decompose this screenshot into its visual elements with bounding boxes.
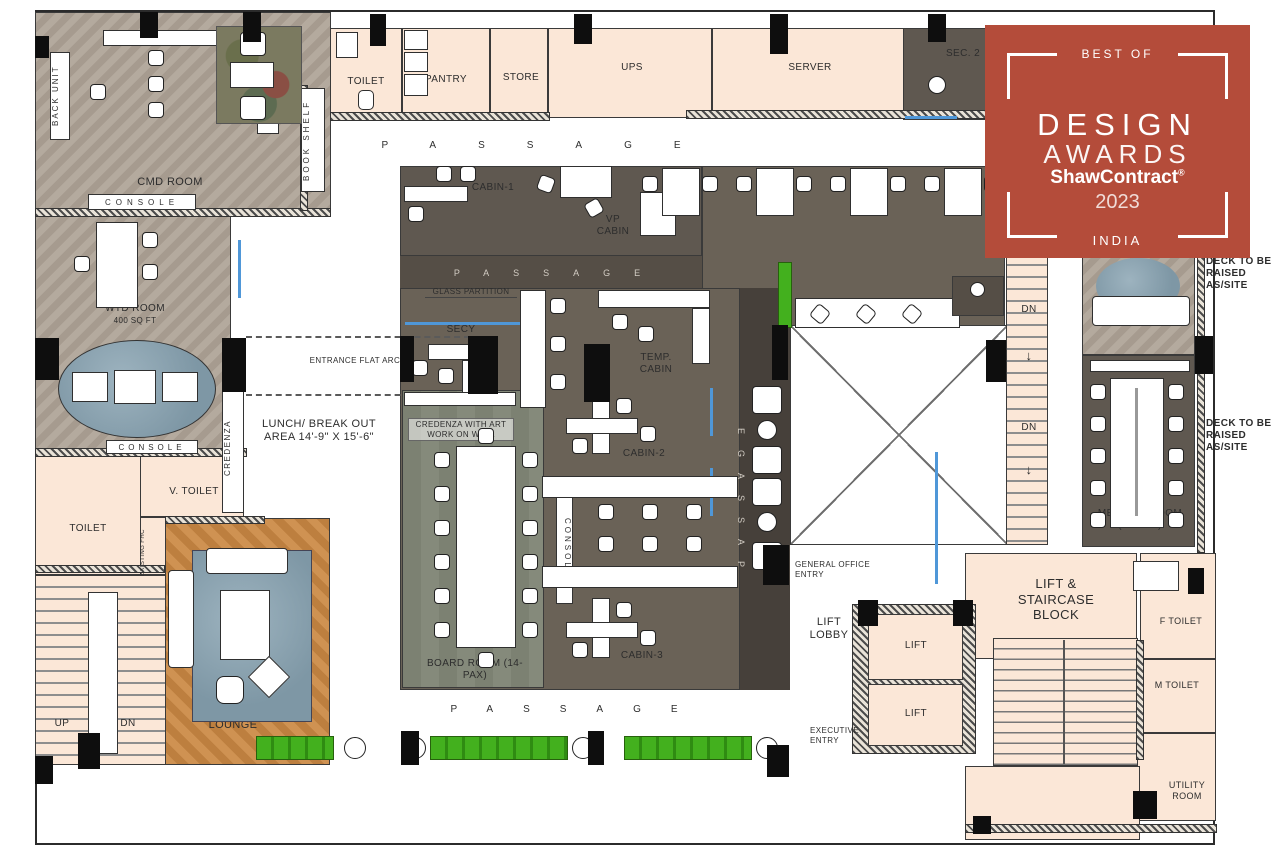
- ws-desk: [944, 168, 982, 216]
- chair: [434, 554, 450, 570]
- cabin2-desk: [566, 418, 638, 434]
- passage-vertical-label: EGASSAP: [726, 378, 746, 634]
- cmd-room-label: CMD ROOM: [120, 176, 220, 189]
- chair: [522, 486, 538, 502]
- board-credenza: [404, 392, 516, 406]
- ws-column-desk: [520, 290, 546, 408]
- glass-line: [710, 388, 713, 436]
- glass-line: [405, 322, 537, 325]
- passage-bottom-label: PASSAGE: [444, 704, 714, 716]
- temp-cabin-desk: [598, 290, 710, 308]
- column: [973, 816, 991, 834]
- down-arrow-2: ↓: [1016, 462, 1042, 478]
- chair: [478, 652, 494, 668]
- column: [401, 731, 419, 765]
- chair: [434, 452, 450, 468]
- chair: [522, 622, 538, 638]
- exec-armchair: [216, 676, 244, 704]
- cluster-desk-bottom: [542, 566, 738, 588]
- award-badge: BEST OF DESIGN AWARDS ShawContract® 2023…: [985, 25, 1250, 258]
- exec-entry-label: EXECUTIVE ENTRY: [810, 726, 878, 745]
- chair: [550, 374, 566, 390]
- bench-seat: [752, 478, 782, 506]
- cabin1-desk: [404, 186, 468, 202]
- deck-label-top: DECK TO BE RAISED AS/SITE: [1206, 256, 1278, 292]
- chair: [148, 50, 164, 66]
- column: [222, 338, 246, 392]
- glass-line: [935, 452, 938, 584]
- chair: [1168, 416, 1184, 432]
- sec2-label: SEC. 2: [936, 48, 990, 60]
- chair: [642, 536, 658, 552]
- m-toilet-room: [1140, 659, 1216, 733]
- shaft-x-box: [1133, 561, 1179, 591]
- chair: [616, 398, 632, 414]
- chair: [550, 298, 566, 314]
- column: [1188, 568, 1204, 594]
- chair: [1090, 448, 1106, 464]
- back-unit-label: BACK UNIT: [50, 52, 70, 140]
- chair: [572, 438, 588, 454]
- chair: [598, 504, 614, 520]
- column: [35, 338, 59, 380]
- glass-line: [905, 116, 957, 119]
- wall-segment: [686, 110, 1006, 119]
- chair: [434, 520, 450, 536]
- deck-label-mid: DECK TO BE RAISED AS/SITE: [1206, 418, 1278, 454]
- chair: [522, 520, 538, 536]
- column: [953, 600, 973, 626]
- bench-seat: [752, 446, 782, 474]
- pantry-appliance: [404, 30, 428, 50]
- column: [35, 36, 49, 58]
- chair: [478, 428, 494, 444]
- lift-staircase-label: LIFT & STAIRCASE BLOCK: [1000, 576, 1112, 623]
- glass-line: [238, 240, 241, 298]
- chair: [438, 368, 454, 384]
- up-label: UP: [46, 718, 78, 730]
- secy-label: SECY: [438, 324, 484, 336]
- chair: [1168, 480, 1184, 496]
- lounge-sofa: [1092, 296, 1190, 326]
- chair: [1090, 480, 1106, 496]
- cabin2-label: CABIN-2: [612, 448, 676, 460]
- entrance-arch-label: ENTRANCE FLAT ARCH: [303, 356, 413, 366]
- column: [858, 600, 878, 626]
- exec-table: [220, 590, 270, 660]
- pantry-appliance: [404, 52, 428, 72]
- stairs-bottom-right: [993, 638, 1138, 766]
- toilet-left-label: TOILET: [58, 523, 118, 535]
- wtd-desk: [96, 222, 138, 308]
- column: [78, 733, 100, 769]
- ws-desk: [662, 168, 700, 216]
- column: [243, 12, 261, 42]
- chair: [598, 536, 614, 552]
- lift1-label: LIFT: [898, 640, 934, 652]
- v-toilet-label: V. TOILET: [158, 486, 230, 498]
- column: [772, 325, 788, 380]
- column: [35, 756, 53, 784]
- chair: [522, 452, 538, 468]
- chair: [640, 630, 656, 646]
- chair: [686, 504, 702, 520]
- badge-brand-text: ShawContract: [1050, 167, 1178, 188]
- lift-lobby-label: LIFT LOBBY: [800, 616, 858, 642]
- chair: [142, 264, 158, 280]
- chair: [522, 554, 538, 570]
- wall-segment: [1136, 640, 1144, 760]
- badge-reg-mark: ®: [1178, 168, 1185, 178]
- cabin3-desk: [566, 622, 638, 638]
- wall-segment: [330, 112, 550, 121]
- badge-title-awards: AWARDS: [985, 139, 1250, 170]
- temp-cabin-label: TEMP. CABIN: [628, 352, 684, 376]
- down-arrow-1: ↓: [1016, 348, 1042, 364]
- chair: [240, 96, 266, 120]
- chair: [550, 336, 566, 352]
- chair: [90, 84, 106, 100]
- stair-divider: [1063, 640, 1065, 764]
- chair: [436, 166, 452, 182]
- toilet-sink: [336, 32, 358, 58]
- badge-title-design: DESIGN: [985, 107, 1250, 143]
- column: [584, 344, 610, 402]
- round-planter: [344, 737, 366, 759]
- chair: [74, 256, 90, 272]
- column: [468, 336, 498, 394]
- core-shaft: [790, 325, 1008, 545]
- meeting-table-slot: [1135, 388, 1138, 516]
- chair: [1090, 384, 1106, 400]
- temp-cabin-return: [692, 308, 710, 364]
- planter: [430, 736, 568, 760]
- planter: [624, 736, 752, 760]
- exec-sofa-top: [206, 548, 288, 574]
- chair: [642, 176, 658, 192]
- meeting-credenza: [1090, 360, 1190, 372]
- glass-partition-label: GLASS PARTITION: [425, 287, 517, 298]
- chair: [702, 176, 718, 192]
- chair: [434, 622, 450, 638]
- chair: [412, 360, 428, 376]
- chair: [1168, 384, 1184, 400]
- server-label: SERVER: [782, 62, 838, 74]
- floor-plan-canvas: BACK UNIT BOOK SHELF CREDENZA CONSOLE CO…: [0, 0, 1280, 856]
- badge-brand: ShawContract®: [985, 167, 1250, 189]
- column: [770, 14, 788, 54]
- dn-right-1: DN: [1014, 304, 1044, 316]
- column: [370, 14, 386, 46]
- bench-seat: [752, 386, 782, 414]
- stair-rail: [88, 592, 118, 754]
- planter: [256, 736, 334, 760]
- chair: [638, 326, 654, 342]
- cmd-coffee-table: [230, 62, 274, 88]
- console-wtd-label: CONSOLE: [106, 440, 198, 454]
- chair: [642, 504, 658, 520]
- stairs-right: [1006, 253, 1048, 545]
- wtd-area-label: 400 SQ FT: [105, 316, 165, 326]
- chair: [796, 176, 812, 192]
- column: [767, 745, 789, 777]
- vp-cabin-label: VP CABIN: [590, 214, 636, 238]
- board-room-label: BOARD ROOM (14-PAX): [425, 658, 525, 682]
- chair: [612, 314, 628, 330]
- badge-country: INDIA: [985, 233, 1250, 248]
- wtd-seat: [72, 372, 108, 402]
- existing-fhc-label: EXISTING FHC: [140, 528, 153, 578]
- wtd-table: [114, 370, 156, 404]
- badge-best-of: BEST OF: [985, 47, 1250, 61]
- cluster-desk-top: [542, 476, 738, 498]
- column: [986, 340, 1006, 382]
- vp-desk: [560, 166, 612, 198]
- chair: [148, 102, 164, 118]
- chair: [142, 232, 158, 248]
- lift2-label: LIFT: [898, 708, 934, 720]
- planter-vertical: [778, 262, 792, 328]
- board-table: [456, 446, 516, 648]
- chair: [928, 76, 946, 94]
- chair: [1168, 512, 1184, 528]
- wall-segment: [165, 516, 265, 524]
- f-toilet-label: F TOILET: [1150, 616, 1212, 627]
- m-toilet-label: M TOILET: [1144, 680, 1210, 691]
- toilet-top-label: TOILET: [334, 76, 398, 88]
- chair: [686, 536, 702, 552]
- chair: [736, 176, 752, 192]
- chair: [460, 166, 476, 182]
- chair: [1168, 448, 1184, 464]
- wtd-seat: [162, 372, 198, 402]
- chair: [616, 602, 632, 618]
- book-shelf-label: BOOK SHELF: [301, 88, 325, 192]
- column: [1133, 791, 1157, 819]
- column: [763, 545, 789, 585]
- passage-2-label: PASSAGE: [444, 268, 674, 279]
- column: [140, 12, 158, 38]
- toilet-wc: [358, 90, 374, 110]
- chair: [890, 176, 906, 192]
- cabin3-label: CABIN-3: [610, 650, 674, 662]
- column: [400, 336, 414, 382]
- ws-desk: [756, 168, 794, 216]
- dn-right-2: DN: [1014, 422, 1044, 434]
- chair: [572, 642, 588, 658]
- passage-top-label: PASSAGE: [362, 140, 742, 152]
- stool: [757, 420, 777, 440]
- chair: [408, 206, 424, 222]
- column: [928, 14, 946, 42]
- chair: [522, 588, 538, 604]
- pantry-appliance: [404, 74, 428, 96]
- wall-segment: [965, 824, 1217, 833]
- chair: [1090, 416, 1106, 432]
- chair: [640, 426, 656, 442]
- wall-segment: [1197, 253, 1205, 553]
- exec-sofa-left: [168, 570, 194, 668]
- lunch-area-label: LUNCH/ BREAK OUT AREA 14'-9" X 15'-6": [245, 418, 393, 444]
- general-entry-label: GENERAL OFFICE ENTRY: [795, 560, 877, 579]
- ups-label: UPS: [612, 62, 652, 74]
- chair: [830, 176, 846, 192]
- store-label: STORE: [498, 72, 544, 84]
- chair: [924, 176, 940, 192]
- stool: [757, 512, 777, 532]
- column: [1195, 336, 1213, 374]
- chair: [970, 282, 985, 297]
- credenza-art-label: CREDENZA WITH ART WORK ON WALL: [408, 418, 514, 441]
- column: [574, 14, 592, 44]
- chair: [1090, 512, 1106, 528]
- badge-year: 2023: [985, 191, 1250, 214]
- chair: [434, 486, 450, 502]
- console-top-label: CONSOLE: [88, 194, 196, 210]
- chair: [148, 76, 164, 92]
- chair: [434, 588, 450, 604]
- ws-desk: [850, 168, 888, 216]
- utility-label: UTILITY ROOM: [1158, 780, 1216, 802]
- column: [588, 731, 604, 765]
- toilet-left-room: [35, 455, 145, 575]
